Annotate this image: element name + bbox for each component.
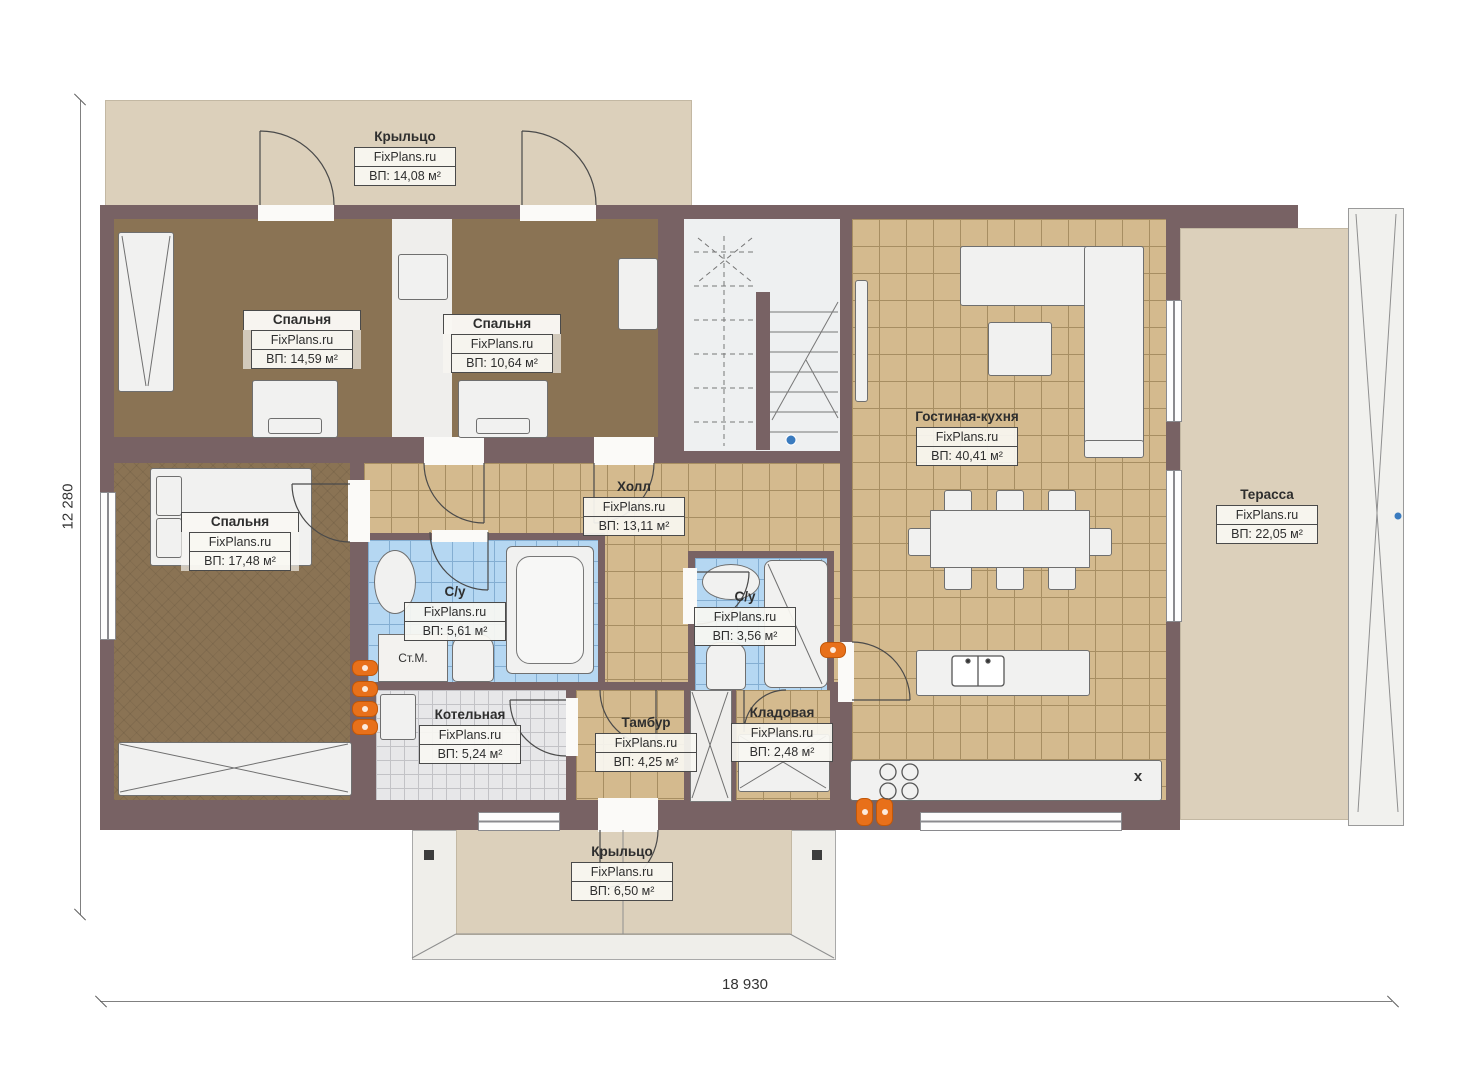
dim-width-label: 18 930 [690, 976, 800, 993]
sofa-armrest [1084, 440, 1144, 458]
pillow [476, 418, 530, 434]
room-area: ВП: 14,59 м² [251, 350, 353, 369]
room-name: Спальня [243, 310, 361, 330]
room-brand: FixPlans.ru [354, 147, 456, 167]
dining-table [930, 510, 1090, 568]
room-label-bath-2: С/у FixPlans.ru ВП: 3,56 м² [693, 588, 797, 646]
coffee-table [988, 322, 1052, 376]
room-name: Котельная [431, 706, 510, 725]
terrace-roof-edge [1348, 208, 1404, 826]
room-area: ВП: 2,48 м² [731, 743, 833, 762]
room-name: Холл [613, 478, 655, 497]
pillow [156, 476, 182, 516]
door-opening [424, 437, 484, 465]
sofa-section [1084, 246, 1144, 444]
room-brand: FixPlans.ru [595, 733, 697, 753]
room-brand: FixPlans.ru [583, 497, 685, 517]
room-brand: FixPlans.ru [571, 862, 673, 882]
room-name: Спальня [181, 512, 299, 532]
kitchen-counter [850, 760, 1162, 801]
room-brand: FixPlans.ru [916, 427, 1018, 447]
room-area: ВП: 40,41 м² [916, 447, 1018, 466]
utility-symbol [352, 719, 378, 735]
window [1166, 470, 1182, 622]
room-name: Гостиная-кухня [911, 408, 1022, 427]
door-opening [594, 437, 654, 465]
door-opening [598, 798, 658, 832]
room-area: ВП: 6,50 м² [571, 882, 673, 901]
room-name: Терасса [1236, 486, 1298, 505]
kitchen-island [916, 650, 1090, 696]
room-brand: FixPlans.ru [251, 330, 353, 350]
room-label-bedroom-3: Спальня FixPlans.ru ВП: 17,48 м² [181, 512, 299, 571]
room-brand: FixPlans.ru [694, 607, 796, 627]
room-area: ВП: 17,48 м² [189, 552, 291, 571]
room-name: Крыльцо [587, 843, 656, 862]
dresser [618, 258, 658, 330]
room-brand: FixPlans.ru [1216, 505, 1318, 525]
room-label-porch-top: Крыльцо FixPlans.ru ВП: 14,08 м² [350, 128, 460, 186]
room-brand: FixPlans.ru [419, 725, 521, 745]
room-label-hall: Холл FixPlans.ru ВП: 13,11 м² [582, 478, 686, 536]
dim-height-label: 12 280 [60, 467, 77, 547]
room-label-bedroom-2: Спальня FixPlans.ru ВП: 10,64 м² [443, 314, 561, 373]
room-name: Крыльцо [370, 128, 439, 147]
kitchen-x-mark: x [1128, 768, 1148, 785]
room-label-bedroom-1: Спальня FixPlans.ru ВП: 14,59 м² [243, 310, 361, 369]
floor-plan: 12 280 18 930 [0, 0, 1474, 1080]
door-opening [258, 205, 334, 221]
bathtub-basin [516, 556, 584, 664]
window [920, 812, 1122, 831]
dim-line-left [80, 100, 81, 915]
tv-unit [855, 280, 868, 402]
room-area: ВП: 5,24 м² [419, 745, 521, 764]
wardrobe [118, 742, 352, 796]
room-brand: FixPlans.ru [731, 723, 833, 743]
room-area: ВП: 5,61 м² [404, 622, 506, 641]
utility-symbol [820, 642, 846, 658]
room-area: ВП: 10,64 м² [451, 354, 553, 373]
utility-symbol [352, 681, 378, 697]
dim-line-bottom [100, 1001, 1392, 1002]
room-area: ВП: 22,05 м² [1216, 525, 1318, 544]
room-name: С/у [730, 588, 759, 607]
pillow [156, 518, 182, 558]
room-label-boiler: Котельная FixPlans.ru ВП: 5,24 м² [411, 706, 529, 764]
door-opening [348, 480, 370, 542]
room-label-vestibule: Тамбур FixPlans.ru ВП: 4,25 м² [590, 714, 702, 772]
room-brand: FixPlans.ru [189, 532, 291, 552]
room-area: ВП: 3,56 м² [694, 627, 796, 646]
stairs-floor [684, 219, 840, 451]
room-label-terrace: Терасса FixPlans.ru ВП: 22,05 м² [1209, 486, 1325, 544]
porch-post [424, 850, 434, 860]
pillow [268, 418, 322, 434]
porch-post [812, 850, 822, 860]
toilet [706, 642, 746, 690]
room-brand: FixPlans.ru [451, 334, 553, 354]
dresser [398, 254, 448, 300]
wardrobe [118, 232, 174, 392]
door-opening [432, 530, 488, 542]
room-brand: FixPlans.ru [404, 602, 506, 622]
room-label-porch-bottom: Крыльцо FixPlans.ru ВП: 6,50 м² [566, 843, 678, 901]
utility-symbol [352, 701, 378, 717]
window [1166, 300, 1182, 422]
door-opening [520, 205, 596, 221]
room-name: С/у [440, 583, 469, 602]
washing-machine-label: Ст.М. [398, 651, 428, 665]
room-label-storage: Кладовая FixPlans.ru ВП: 2,48 м² [726, 704, 838, 762]
utility-symbol [876, 798, 893, 826]
door-opening [566, 698, 578, 756]
room-area: ВП: 4,25 м² [595, 753, 697, 772]
room-name: Спальня [443, 314, 561, 334]
utility-symbol [352, 660, 378, 676]
room-name: Кладовая [746, 704, 819, 723]
room-name: Тамбур [618, 714, 675, 733]
room-label-bath-1: С/у FixPlans.ru ВП: 5,61 м² [403, 583, 507, 641]
utility-symbol [856, 798, 873, 826]
room-area: ВП: 14,08 м² [354, 167, 456, 186]
room-label-living-kitchen: Гостиная-кухня FixPlans.ru ВП: 40,41 м² [892, 408, 1042, 466]
window [100, 492, 116, 640]
room-area: ВП: 13,11 м² [583, 517, 685, 536]
window [478, 812, 560, 831]
